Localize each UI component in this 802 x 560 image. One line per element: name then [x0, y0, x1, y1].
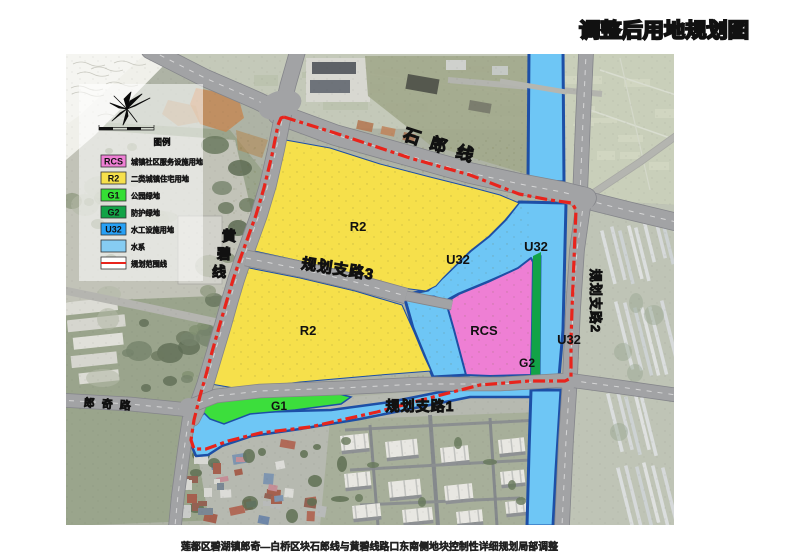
svg-text:水工设施用地: 水工设施用地	[131, 225, 174, 235]
svg-text:规划范围线: 规划范围线	[131, 259, 167, 269]
svg-text:RCS: RCS	[470, 323, 498, 338]
svg-text:G1: G1	[107, 191, 119, 201]
svg-text:公园绿地: 公园绿地	[131, 191, 160, 201]
svg-text:G2: G2	[107, 208, 119, 218]
svg-text:U32: U32	[446, 252, 470, 267]
svg-text:城镇社区服务设施用地: 城镇社区服务设施用地	[131, 157, 203, 167]
svg-text:规划支路1: 规划支路1	[386, 398, 455, 414]
svg-text:二类城镇住宅用地: 二类城镇住宅用地	[131, 174, 189, 184]
svg-text:水系: 水系	[131, 242, 145, 252]
svg-text:调整后用地规划图: 调整后用地规划图	[579, 18, 749, 42]
svg-text:U32: U32	[105, 225, 122, 235]
svg-text:碧: 碧	[216, 246, 231, 262]
svg-text:R2: R2	[350, 219, 367, 234]
svg-text:RCS: RCS	[104, 157, 123, 167]
svg-text:图例: 图例	[153, 137, 171, 147]
svg-text:U32: U32	[524, 239, 548, 254]
svg-text:U32: U32	[557, 332, 581, 347]
svg-text:防护绿地: 防护绿地	[131, 208, 160, 218]
svg-text:线: 线	[212, 264, 226, 280]
svg-text:G2: G2	[519, 356, 535, 370]
svg-text:莲都区碧湖镇郎奇—白桥区块石郎线与黄碧线路口东南侧地块控制性: 莲都区碧湖镇郎奇—白桥区块石郎线与黄碧线路口东南侧地块控制性详细规划局部调整	[181, 540, 558, 553]
svg-text:黄: 黄	[222, 228, 236, 244]
svg-text:R2: R2	[300, 323, 317, 338]
svg-text:G1: G1	[271, 399, 287, 413]
svg-text:规划支路2: 规划支路2	[588, 269, 603, 333]
svg-text:R2: R2	[108, 174, 120, 184]
